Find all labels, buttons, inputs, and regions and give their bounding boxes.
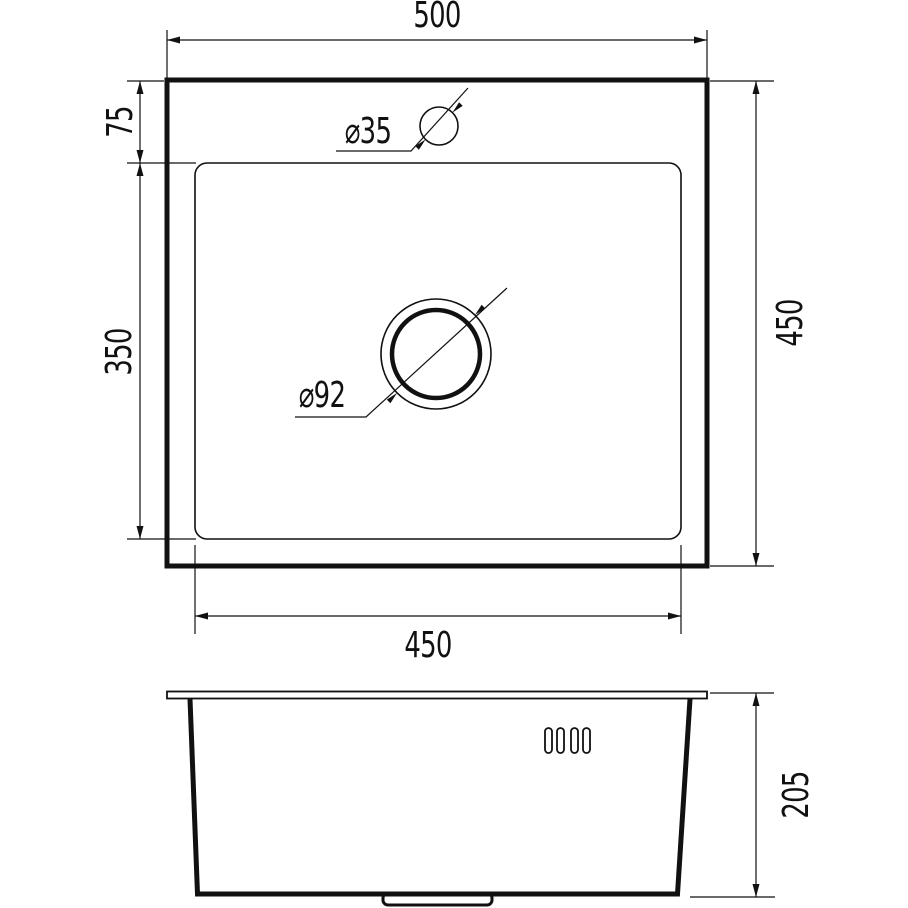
arrow-205-bottom — [753, 884, 760, 897]
arrow-75-bottom — [137, 150, 144, 163]
side-view — [167, 692, 707, 906]
label-side-height: 205 — [776, 771, 817, 818]
drawing-canvas: 500 ⌀35 ⌀92 450 75 350 450 205 — [0, 0, 908, 908]
rim-profile — [167, 692, 707, 699]
arrow-350-top — [137, 163, 144, 176]
arrow-75-top — [137, 81, 144, 94]
overflow-slot-2 — [557, 728, 564, 753]
overflow-slot-4 — [583, 728, 590, 753]
label-overall-width: 500 — [413, 0, 460, 36]
arrow-350-bottom — [137, 526, 144, 539]
arrow-500-right — [694, 37, 707, 44]
label-bowl-width: 450 — [404, 625, 451, 666]
label-faucet-offset: 75 — [100, 106, 141, 138]
arrow-450b-right — [668, 613, 681, 620]
arrow-450b-left — [195, 613, 208, 620]
sink-outer-rim — [167, 80, 707, 566]
arrow-450r-top — [753, 81, 760, 94]
arrow-500-left — [167, 37, 180, 44]
label-overall-depth: 450 — [770, 299, 811, 346]
arrow-450r-bottom — [753, 553, 760, 566]
label-faucet-hole-diameter: ⌀35 — [345, 111, 391, 152]
top-view — [167, 80, 707, 566]
overflow-slot-3 — [571, 728, 578, 753]
bowl-body — [190, 699, 690, 894]
arrow-205-top — [753, 693, 760, 706]
overflow-slot-1 — [545, 728, 552, 753]
label-drain-diameter: ⌀92 — [299, 375, 345, 416]
label-bowl-depth: 350 — [99, 328, 140, 375]
sink-technical-drawing: 500 ⌀35 ⌀92 450 75 350 450 205 — [0, 0, 908, 908]
